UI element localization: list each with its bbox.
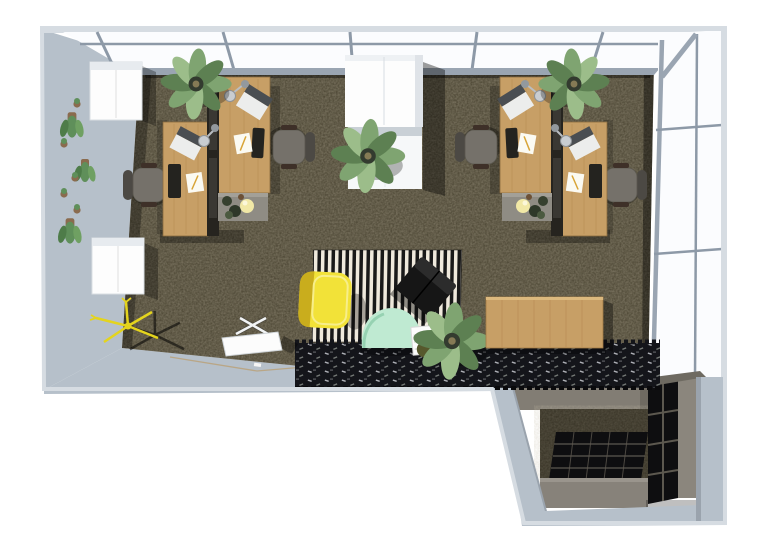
annex [490, 371, 727, 526]
annex-low-cabinet[interactable] [540, 478, 648, 508]
annex-cube-shelf-top[interactable] [549, 432, 648, 480]
wall-cabinet-lower[interactable] [92, 238, 158, 300]
office-floorplan-svg: 3D top-down render of an L-shaped office… [0, 0, 766, 551]
wall-cabinet-upper[interactable] [90, 62, 156, 126]
office-render-canvas: 3D top-down render of an L-shaped office… [0, 0, 766, 551]
tall-white-cabinet-with-plant[interactable] [330, 55, 445, 196]
glass-curtain-wall-right [653, 28, 727, 380]
wooden-sideboard[interactable] [486, 297, 613, 354]
